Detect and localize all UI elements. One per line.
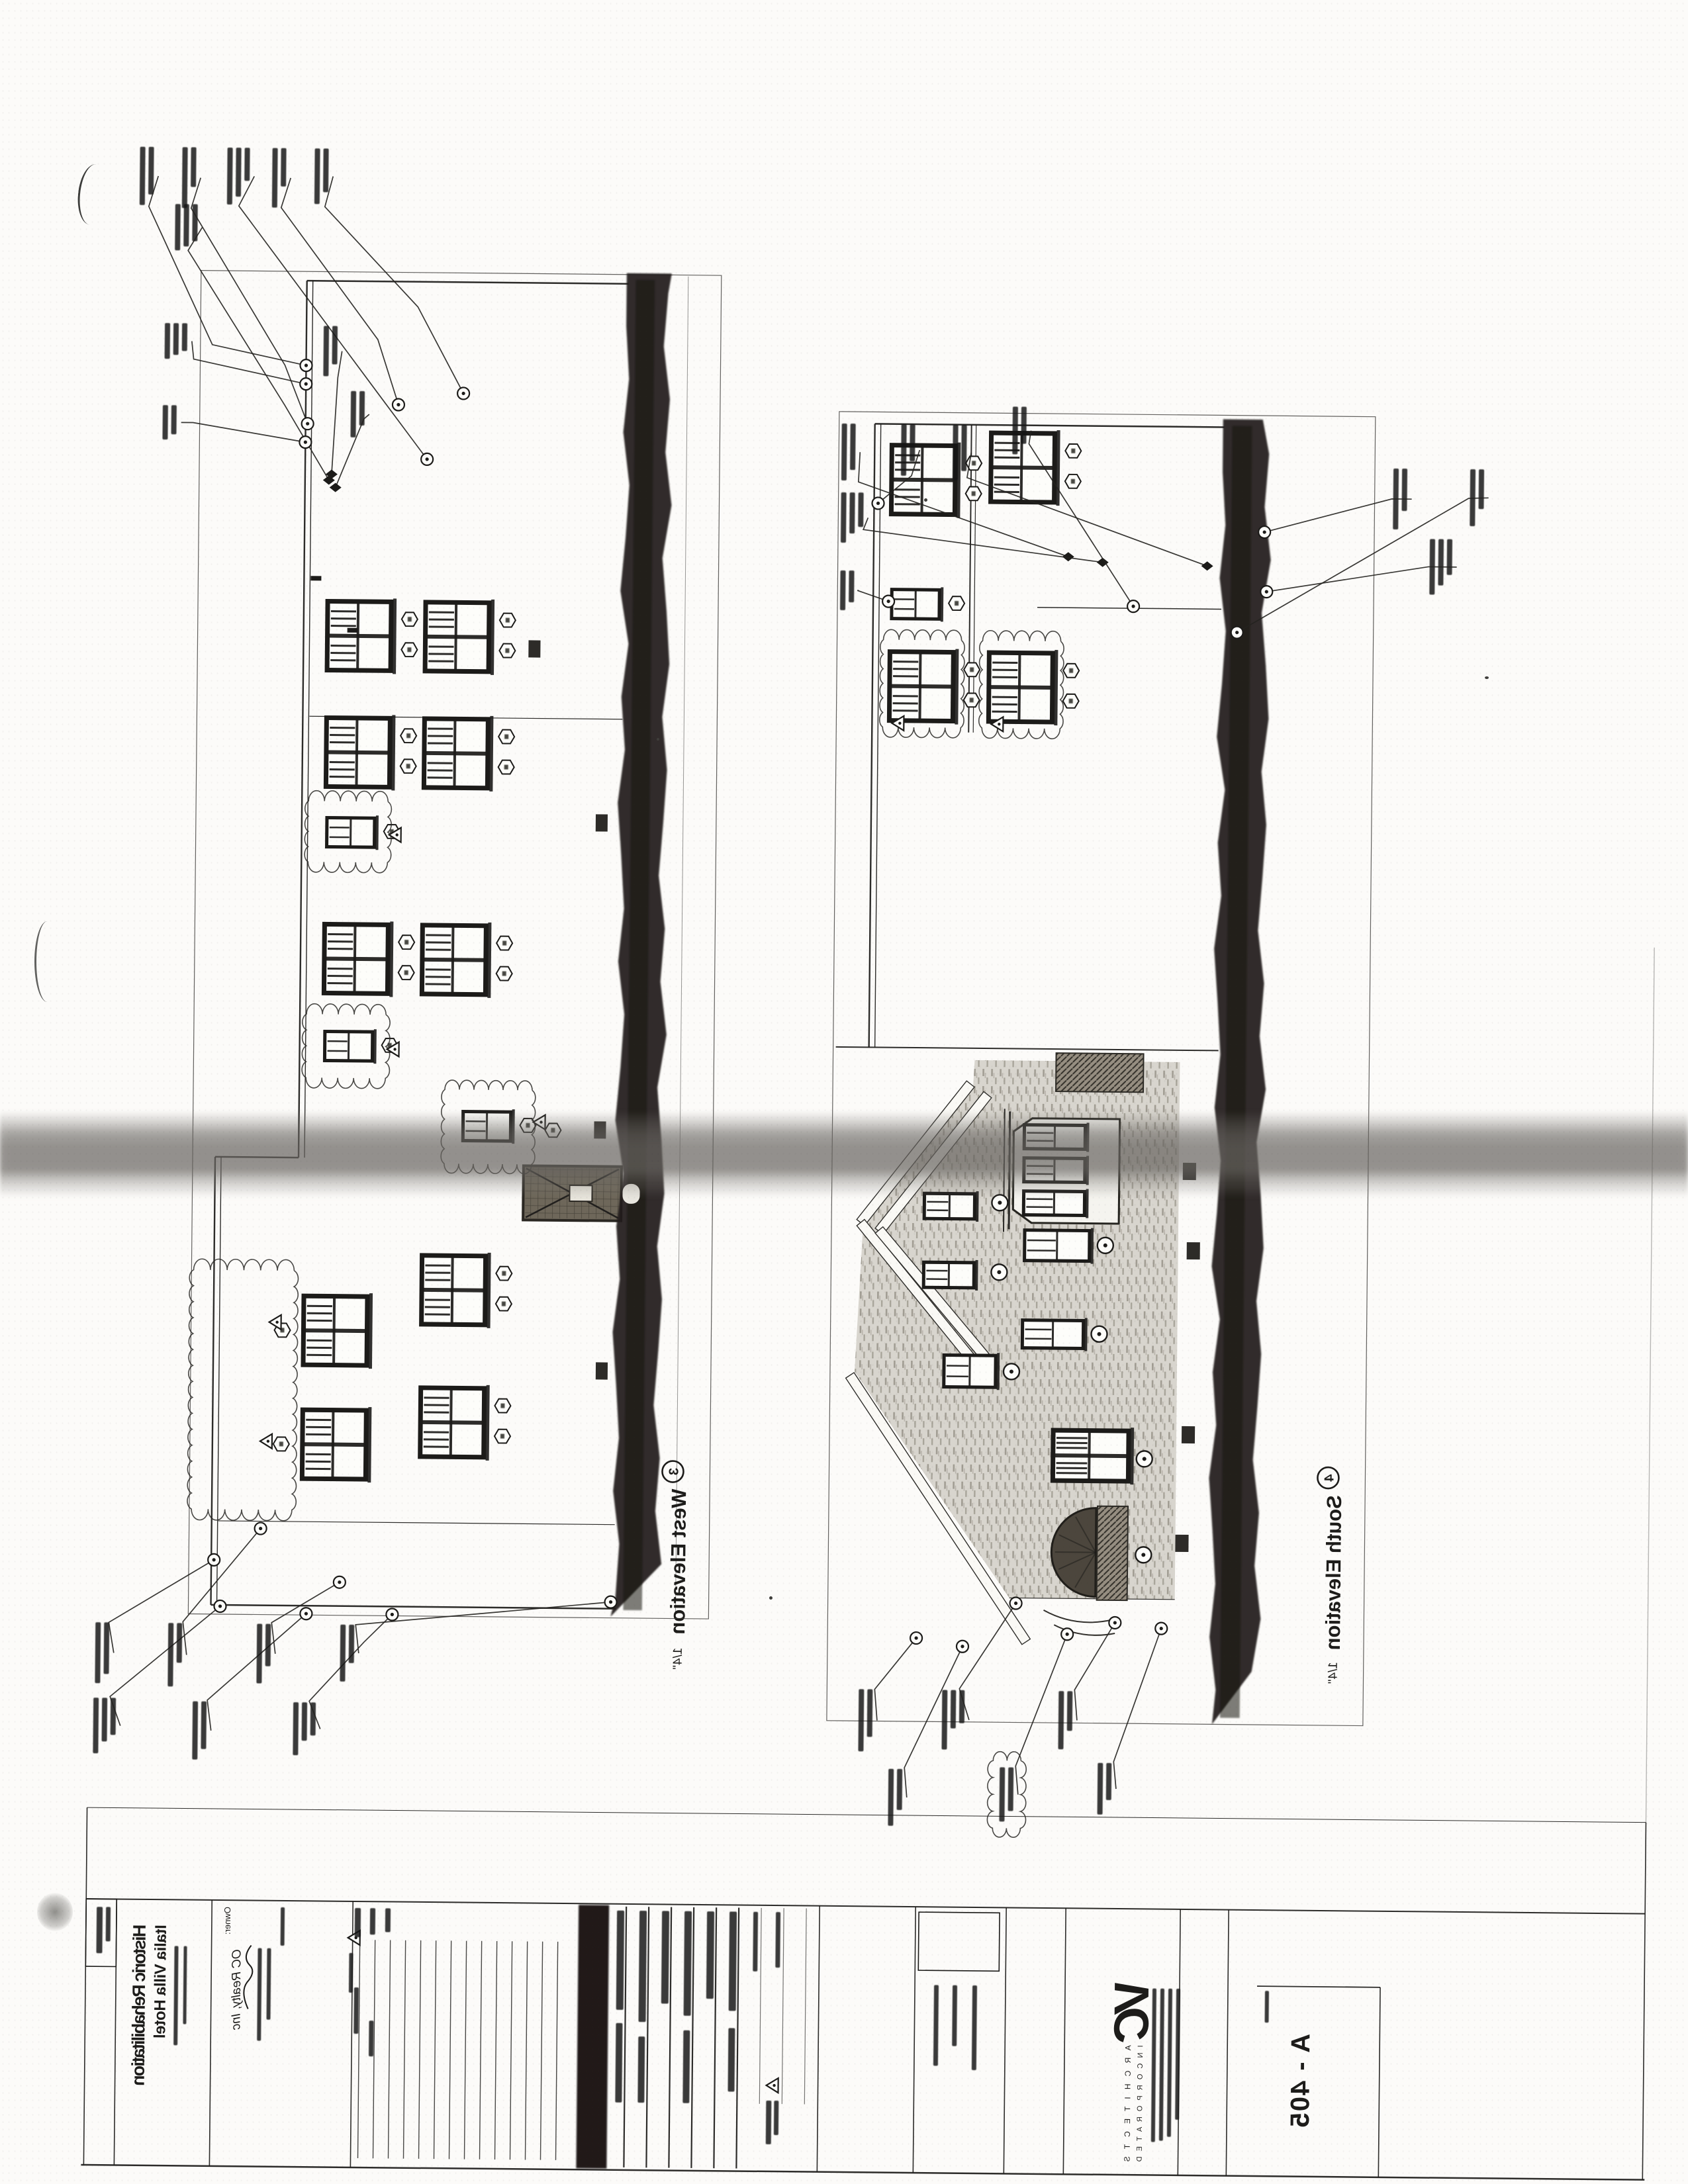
keynote xyxy=(164,323,312,390)
keynote xyxy=(256,1576,346,1684)
tag-number-smudge xyxy=(970,667,974,672)
meeting-rail xyxy=(357,604,358,668)
foundation-vent xyxy=(596,1362,608,1379)
revision-row xyxy=(494,1941,496,2160)
view-title: West Elevation xyxy=(666,1488,690,1634)
keynote-text-smudge xyxy=(244,148,250,181)
window-small xyxy=(1024,1156,1089,1185)
illegible-text-smudge xyxy=(775,1912,780,1968)
revision-triangle xyxy=(766,2078,778,2093)
window-tag-circle xyxy=(991,1264,1007,1280)
keynote-text-smudge xyxy=(192,1702,198,1760)
tag-number-smudge xyxy=(1071,479,1075,484)
illegible-text-smudge xyxy=(682,2030,690,2103)
tag-number-smudge xyxy=(972,491,976,496)
title-block-divider xyxy=(817,1906,820,2172)
illegible-text-smudge xyxy=(385,1908,391,1932)
illegible-text-smudge xyxy=(684,1911,692,2016)
leader-arrow-dot xyxy=(212,1558,216,1561)
revision-triangle-mark xyxy=(898,722,901,725)
leader-line xyxy=(323,176,465,393)
issue-row xyxy=(714,1907,716,2168)
chimney xyxy=(1056,1053,1144,1092)
illegible-text-smudge xyxy=(369,2021,374,2056)
leader-arrow-dot xyxy=(218,1604,222,1608)
illegible-text-smudge xyxy=(106,1907,111,1941)
sheet-rotation-wrapper: Historic Rehabilitation Italia Villa Hot… xyxy=(0,0,1688,2184)
tag-number-smudge xyxy=(504,735,508,739)
issue-row-light xyxy=(782,1908,784,2104)
revision-row xyxy=(525,1941,527,2160)
keynote-text-smudge xyxy=(1021,407,1027,444)
keynote-text-smudge xyxy=(858,492,863,527)
window-tag-hex xyxy=(966,486,982,500)
drawing-sheet: Historic Rehabilitation Italia Villa Hot… xyxy=(0,0,1688,2184)
illegible-text-smudge xyxy=(355,1908,361,1937)
meeting-rail xyxy=(355,927,355,991)
illegible-text-smudge xyxy=(615,2023,622,2103)
tag-number-smudge xyxy=(404,970,408,975)
keynote xyxy=(1011,406,1141,612)
bay-window xyxy=(1004,1109,1120,1233)
keynote-text-smudge xyxy=(850,424,856,470)
window-tag-hex xyxy=(1063,664,1079,678)
window-small xyxy=(326,815,378,850)
window-tag-hex xyxy=(496,1297,512,1311)
leader-arrow-dot xyxy=(259,1527,262,1530)
leader-line xyxy=(279,178,400,405)
keynote-text-smudge xyxy=(323,148,329,192)
illegible-text-smudge xyxy=(753,1912,758,1972)
heavy-separator-bar xyxy=(576,1905,609,2168)
illegible-text-smudge xyxy=(706,1911,714,1999)
title-block-divider xyxy=(1378,1987,1380,2177)
window-pair xyxy=(324,921,393,997)
keynote xyxy=(888,1640,968,1827)
tag-dot xyxy=(1009,1369,1013,1373)
illegible-text-smudge xyxy=(637,2036,645,2103)
window-tag-hex xyxy=(401,643,417,657)
keynote-text-smudge xyxy=(953,425,959,480)
meeting-rail xyxy=(921,447,922,512)
tag-number-smudge xyxy=(408,617,412,621)
sheet-svg: Historic Rehabilitation Italia Villa Hot… xyxy=(0,0,1688,2184)
window-small xyxy=(944,1352,1000,1390)
revision-row xyxy=(418,1940,420,2159)
illegible-text-smudge xyxy=(370,1908,375,1934)
revision-row xyxy=(510,1941,512,2160)
leader-line xyxy=(1113,1628,1161,1790)
view-title: South Elevation xyxy=(1321,1495,1346,1651)
issue-row xyxy=(669,1907,671,2168)
keynote-text-smudge xyxy=(340,1625,346,1682)
keynote-text-smudge xyxy=(901,424,907,476)
foundation-vent xyxy=(596,814,608,831)
title-block-divider xyxy=(209,1900,212,2166)
window-pair xyxy=(327,598,397,674)
keynote-text-smudge xyxy=(177,1623,183,1662)
keynote-text-smudge xyxy=(888,1769,894,1826)
keynote-text-smudge xyxy=(256,1624,262,1684)
window-pair xyxy=(422,922,491,998)
fanlight-spoke xyxy=(1055,1552,1096,1553)
keynote-text-smudge xyxy=(104,1622,110,1674)
keynote-text-smudge xyxy=(941,1690,947,1749)
tag-number-smudge xyxy=(505,649,509,653)
keynote-text-smudge xyxy=(1401,469,1407,511)
title-block-border xyxy=(81,2165,1644,2180)
keynote-text-smudge xyxy=(201,1702,207,1749)
window-tag-hex xyxy=(273,1437,289,1451)
leader-arrow-dot xyxy=(338,1580,341,1584)
leader-line xyxy=(236,176,430,459)
foundation-vent xyxy=(528,640,540,657)
keynote-text-smudge xyxy=(849,570,854,602)
window-tag-hex xyxy=(399,935,414,949)
window-tag-hex xyxy=(1065,444,1081,458)
window-tag-hex xyxy=(399,966,414,979)
tag-number-smudge xyxy=(506,618,510,623)
window-tag-hex xyxy=(1063,694,1079,708)
sheet-number-box xyxy=(1257,1986,1380,1987)
window-tag-circle xyxy=(1091,1326,1107,1342)
leader-arrow-dot xyxy=(306,422,309,426)
window-tag-hex xyxy=(494,1430,510,1443)
keynote-text-smudge xyxy=(323,326,329,376)
keynote-text-smudge xyxy=(227,148,233,205)
illegible-text-smudge xyxy=(774,2101,778,2135)
revision-triangle-mark xyxy=(267,1439,269,1442)
tag-dot xyxy=(998,1201,1002,1205)
keynote-text-smudge xyxy=(841,492,847,543)
keynote xyxy=(162,405,312,448)
title-block-border xyxy=(86,1899,1645,1914)
leader-line xyxy=(183,1527,261,1655)
keynote xyxy=(1098,1622,1168,1815)
keynote-text-smudge xyxy=(281,148,287,187)
title-block: Historic Rehabilitation Italia Villa Hot… xyxy=(128,1906,1317,2163)
title-block-divider xyxy=(913,1907,915,2173)
keynote-text-smudge xyxy=(840,570,846,610)
window-tag-hex xyxy=(498,730,514,744)
project-title-line1: Historic Rehabilitation xyxy=(128,1925,150,2086)
door xyxy=(523,1165,622,1220)
tag-number-smudge xyxy=(972,461,976,465)
window-tag-circle xyxy=(1135,1547,1151,1563)
tag-dot xyxy=(1141,1553,1145,1557)
illegible-text-smudge xyxy=(96,1907,103,1953)
keynote xyxy=(322,326,342,478)
meeting-rail xyxy=(1089,1433,1090,1479)
keynote-text-smudge xyxy=(165,323,171,359)
window-tag-hex xyxy=(496,936,512,950)
leader-arrow-dot xyxy=(1265,590,1268,593)
wall-corner-line xyxy=(215,1157,299,1158)
window-tag-circle xyxy=(992,1195,1008,1210)
keynote xyxy=(138,147,314,372)
leader-arrow-diamond xyxy=(1201,561,1213,570)
leader-arrow-dot xyxy=(305,1612,308,1615)
leader-arrow-dot xyxy=(305,364,308,367)
revision-triangle-mark xyxy=(773,2084,775,2087)
tag-dot xyxy=(997,1270,1001,1274)
leader-arrow-dot xyxy=(609,1600,612,1604)
revision-triangle xyxy=(269,1315,281,1330)
south-elevation-label: 4 South Elevation 1/4" xyxy=(1315,1467,1346,1684)
revision-cloud xyxy=(187,1259,299,1521)
sheet-number: A - 405 xyxy=(1286,2034,1315,2129)
leader-arrow-dot xyxy=(305,383,308,386)
revision-triangle xyxy=(260,1434,272,1449)
leader-arrow-dot xyxy=(886,600,890,603)
eave-line xyxy=(869,424,875,1047)
window-pair xyxy=(303,1293,373,1369)
window-small xyxy=(324,1028,376,1064)
floor-band xyxy=(968,425,971,733)
leader-arrow-dot xyxy=(961,1645,964,1648)
title-block-border xyxy=(87,1807,1646,1823)
eave-line-2 xyxy=(217,1157,221,1605)
keynote-text-smudge xyxy=(350,391,356,437)
leader-arrow-dot xyxy=(397,403,400,406)
revision-triangle-mark xyxy=(393,1048,396,1050)
leader-line xyxy=(189,177,310,424)
revision-row xyxy=(479,1941,481,2160)
firm-name: A R C H I T E C T S xyxy=(1123,2045,1133,2161)
illegible-text-smudge xyxy=(1175,1989,1180,2120)
eave-line xyxy=(211,1157,215,1605)
foundation-vent xyxy=(1183,1163,1196,1180)
tag-number-smudge xyxy=(1071,449,1075,453)
window-small xyxy=(923,1259,978,1291)
eave-line-2 xyxy=(875,424,881,1047)
illegible-text-smudge xyxy=(1159,1989,1164,2141)
tag-number-smudge xyxy=(404,940,408,944)
window-tag-hex xyxy=(400,729,416,743)
keynote-text-smudge xyxy=(95,1622,101,1683)
window-small xyxy=(1024,1122,1089,1152)
keynote-text-smudge xyxy=(293,1702,299,1755)
keynote-text-smudge xyxy=(867,1689,873,1737)
leader-arrow-dot xyxy=(1113,1621,1117,1624)
meeting-rail xyxy=(1021,435,1022,500)
title-block-rules xyxy=(81,933,1656,2180)
tag-number-smudge xyxy=(526,1123,530,1128)
tag-dot xyxy=(1103,1244,1107,1248)
owner-signature-squiggle xyxy=(244,1945,253,2009)
firm-logo-mark: VC xyxy=(1103,1979,1159,2043)
window-small xyxy=(1025,1228,1094,1264)
keynote-text-smudge xyxy=(910,424,915,461)
window-pair xyxy=(889,649,959,725)
window-tag-hex xyxy=(400,759,416,773)
title-block-divider xyxy=(1063,1908,1066,2174)
footing-line xyxy=(675,277,688,1614)
hatched-lintel xyxy=(1097,1506,1128,1600)
keynote xyxy=(1260,537,1457,600)
leader-line xyxy=(109,1559,214,1654)
tag-number-smudge xyxy=(500,1404,504,1408)
keynote-text-smudge xyxy=(849,492,855,533)
revision-row xyxy=(464,1941,466,2160)
keynote-text-smudge xyxy=(332,326,338,365)
keynote-text-smudge xyxy=(140,147,146,205)
keynote-text-smudge xyxy=(175,204,181,250)
title-block-divider xyxy=(83,1807,87,2165)
meeting-rail xyxy=(919,654,920,719)
west-elevation-view xyxy=(186,269,722,1619)
keynote xyxy=(1258,467,1412,539)
window-pair xyxy=(302,1406,371,1482)
keynote-text-smudge xyxy=(182,323,187,351)
illegible-text-smudge xyxy=(952,1985,957,2046)
meeting-rail xyxy=(357,720,357,785)
foundation-vent xyxy=(1175,1535,1188,1552)
keynote-text-smudge xyxy=(1098,1763,1103,1815)
keynote-text-smudge xyxy=(1438,539,1444,586)
window-tag-hex xyxy=(496,967,512,981)
keynote-text-smudge xyxy=(102,1698,108,1741)
illegible-text-smudge xyxy=(267,1948,271,2020)
illegible-text-smudge xyxy=(972,1985,977,2070)
leader-arrow-dot xyxy=(1263,530,1266,533)
revision-row xyxy=(403,1940,405,2159)
keynotes xyxy=(92,146,1491,1842)
keynote xyxy=(840,570,895,611)
door-panel xyxy=(569,1185,592,1201)
revision-triangle-mark xyxy=(395,833,398,836)
leader-arrow-dot xyxy=(1160,1627,1163,1630)
leader-arrow-dot xyxy=(876,502,880,505)
keynote-text-smudge xyxy=(182,147,188,208)
revision-row xyxy=(388,1940,390,2158)
title-block-divider xyxy=(1642,1823,1646,2180)
window-tag-circle xyxy=(1004,1363,1019,1379)
firm-name-2: I N C O R P O R A T E D xyxy=(1136,2045,1145,2161)
scanned-drawing-page: Historic Rehabilitation Italia Villa Hot… xyxy=(0,0,1688,2184)
tag-number-smudge xyxy=(279,1441,283,1446)
revision-row xyxy=(434,1940,436,2159)
meeting-rail xyxy=(452,1257,453,1322)
window-tag-hex xyxy=(496,1267,512,1281)
keynote-text-smudge xyxy=(148,147,154,195)
revision-row xyxy=(555,1942,557,2160)
revision-triangle-mark xyxy=(998,723,1000,725)
view-number: 3 xyxy=(667,1468,681,1475)
revision-row xyxy=(358,1940,360,2158)
leader-arrow-dot xyxy=(391,1613,394,1616)
leader-arrow-dot xyxy=(1131,605,1135,608)
keynote-text-smudge xyxy=(167,1623,173,1686)
meeting-rail xyxy=(455,604,456,669)
keynote-text-smudge xyxy=(162,405,167,439)
tag-number-smudge xyxy=(502,941,506,946)
illegible-text-smudge xyxy=(353,1987,359,2034)
tag-number-smudge xyxy=(500,1434,504,1439)
keynote-text-smudge xyxy=(951,1690,957,1729)
issue-row-light xyxy=(804,1909,806,2105)
revision-cloud xyxy=(987,1751,1026,1837)
generated-drawing-content xyxy=(81,146,1664,2180)
keynote xyxy=(858,1631,922,1752)
issue-row xyxy=(736,1908,739,2169)
leader-line xyxy=(1074,1622,1115,1721)
tag-number-smudge xyxy=(955,601,959,606)
wall-bracket-tick xyxy=(348,628,358,633)
illegible-text-smudge xyxy=(281,1907,285,1946)
tag-number-smudge xyxy=(407,647,411,652)
revision-row xyxy=(449,1940,451,2159)
window-tag-hex xyxy=(949,596,964,610)
window-pair xyxy=(1053,1427,1134,1484)
illegible-text-smudge xyxy=(1167,1989,1172,2137)
window-tag-hex xyxy=(964,662,980,676)
keynote-text-smudge xyxy=(359,391,365,426)
keynote-text-smudge xyxy=(349,1625,355,1663)
illegible-text-smudge xyxy=(173,1946,178,2045)
window-tag-circle xyxy=(1137,1451,1152,1467)
stamp-box xyxy=(918,1912,1000,1971)
leader-arrow-dot xyxy=(1066,1633,1069,1636)
revision-row xyxy=(540,1942,542,2160)
keynote-text-smudge xyxy=(1478,469,1484,509)
window-pair xyxy=(326,714,395,790)
illegible-text-smudge xyxy=(1265,1991,1269,2023)
view-scale: 1/4" xyxy=(671,1648,685,1670)
revision-triangle-mark xyxy=(539,1120,542,1123)
window-tag-circle xyxy=(1098,1238,1113,1253)
keynote-text-smudge xyxy=(111,1698,117,1735)
wall-corner-line xyxy=(836,1047,1219,1051)
meeting-rail xyxy=(452,927,453,992)
grade-marker-pill xyxy=(622,1184,639,1204)
issue-row-light xyxy=(759,1908,761,2104)
window-tag-hex xyxy=(500,614,516,627)
keynote-text-smudge xyxy=(236,148,242,197)
illegible-text-smudge xyxy=(616,1911,624,2010)
window-tag-hex xyxy=(494,1399,510,1413)
issue-row xyxy=(624,1907,626,2167)
leader-arrow-dot xyxy=(914,1636,917,1639)
leader-line xyxy=(332,351,342,475)
leader-arrow-dot xyxy=(1235,631,1239,634)
keynote-text-smudge xyxy=(171,405,176,434)
tag-number-smudge xyxy=(406,764,410,768)
illegible-text-smudge xyxy=(638,1911,647,2022)
leader-line xyxy=(1266,565,1456,594)
keynote-text-smudge xyxy=(1008,1767,1014,1811)
leader-arrow-dot xyxy=(304,441,307,444)
keynote-text-smudge xyxy=(1012,406,1018,454)
window-pair xyxy=(424,715,493,792)
window-pair xyxy=(422,1252,491,1328)
meeting-rail xyxy=(451,1390,451,1455)
tag-number-smudge xyxy=(502,1302,506,1306)
keynote-text-smudge xyxy=(310,1702,316,1735)
foundation-vent xyxy=(1182,1426,1195,1443)
window-pair xyxy=(420,1385,490,1461)
keynote-text-smudge xyxy=(302,1702,308,1741)
illegible-text-smudge xyxy=(933,1985,939,2066)
meeting-rail xyxy=(454,721,455,786)
wall-corner-line xyxy=(307,281,629,284)
south-elevation-view xyxy=(827,412,1376,1726)
tag-number-smudge xyxy=(502,1271,506,1276)
owner-name: OC Realty, Inc xyxy=(229,1949,244,2030)
illegible-text-smudge xyxy=(727,2028,735,2091)
window-tag-hex xyxy=(402,612,418,626)
leader-arrow-dot xyxy=(461,392,465,395)
